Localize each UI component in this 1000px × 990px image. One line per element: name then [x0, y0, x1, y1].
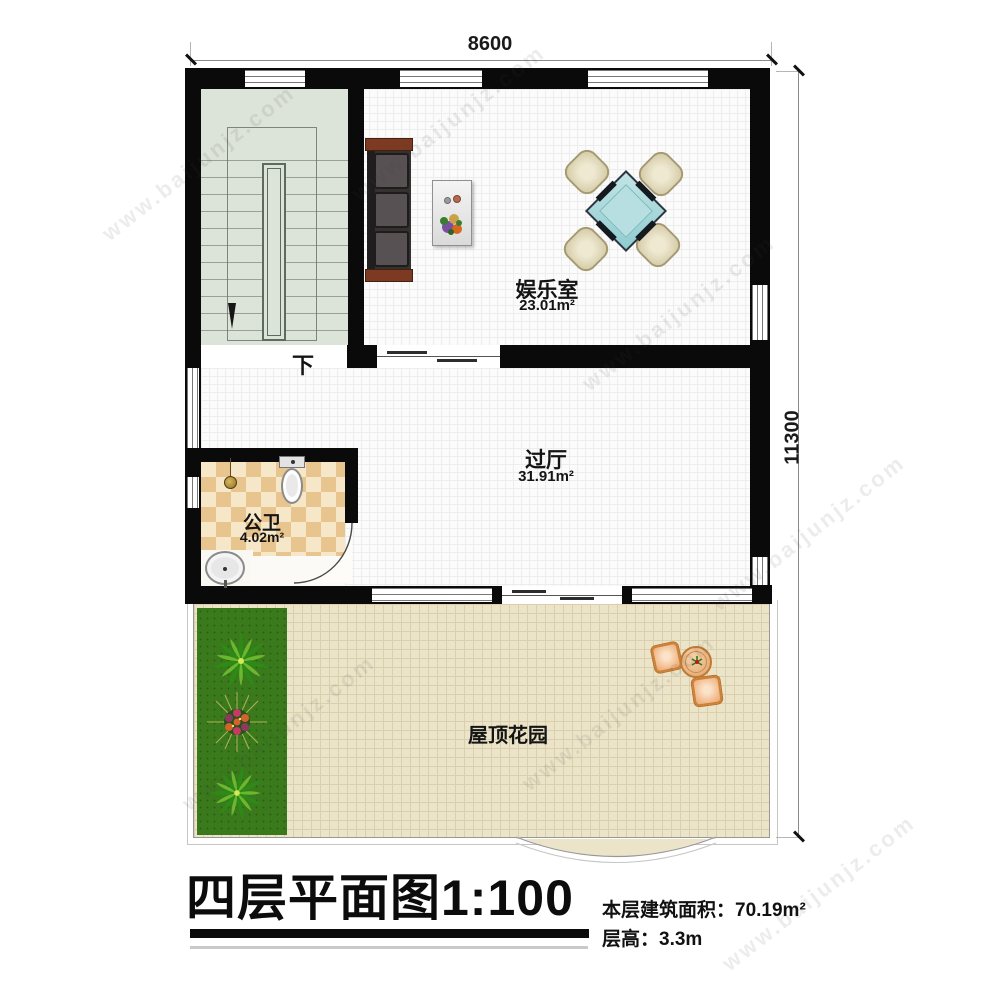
sliding-door-garden-panel	[560, 597, 594, 600]
room-area-bathroom: 4.02m²	[212, 529, 312, 545]
wall-top	[305, 68, 400, 89]
wall-top	[482, 68, 588, 89]
window-right-2	[750, 557, 770, 585]
wall-post	[492, 586, 502, 604]
sofa	[365, 138, 413, 282]
toilet-bowl-inner	[286, 474, 298, 497]
floor-height-info: 层高：3.3m	[602, 924, 702, 951]
dimension-top-label: 8600	[440, 33, 540, 56]
window-hall-bottom-1	[372, 586, 492, 604]
window-right-1	[750, 285, 770, 340]
window-hall-bottom-2	[632, 586, 752, 604]
window-left-bathroom	[185, 477, 201, 508]
wall-left	[185, 68, 201, 368]
sofa-cushion	[374, 153, 409, 189]
toilet-tank-button	[291, 460, 295, 464]
coffee-table-dot	[444, 197, 451, 204]
stairs-down-label: 下	[283, 348, 323, 380]
garden-chair	[650, 641, 682, 673]
wall-stair-divider	[348, 89, 364, 345]
garden-table	[680, 646, 712, 678]
shower-hose	[230, 458, 231, 478]
title-underline-bar	[190, 929, 589, 938]
sliding-door-middle-panel	[387, 351, 427, 354]
sofa-cushion	[374, 192, 409, 228]
wall-hall-bottom	[185, 586, 372, 604]
toilet-bowl	[281, 468, 303, 504]
palm-plant-icon	[206, 762, 268, 824]
wall-bathroom-right	[345, 448, 358, 523]
dimension-right-label: 11300	[782, 388, 805, 488]
coffee-table	[432, 180, 472, 246]
sink-drain	[223, 567, 227, 571]
garden-table-plant-icon	[690, 655, 704, 669]
wall-middle-pier	[347, 345, 377, 368]
table-flowers-icon	[437, 209, 467, 239]
room-label-roof-garden: 屋顶花园	[428, 719, 588, 748]
window-left-hall	[185, 368, 201, 448]
sink-tap	[224, 580, 227, 588]
flower-cluster-icon	[205, 690, 269, 754]
coffee-table-dot	[453, 195, 461, 203]
stairwell	[201, 89, 348, 345]
window-top-1	[245, 68, 305, 89]
sliding-door-middle-panel	[437, 359, 477, 362]
sofa-cushion	[374, 231, 409, 267]
floor-area-info: 本层建筑面积：70.19m²	[602, 895, 806, 922]
wall-corner	[752, 586, 772, 604]
sliding-door-garden	[502, 595, 622, 596]
stair-railing	[262, 163, 286, 341]
wall-right	[750, 68, 770, 285]
wall-right	[750, 340, 770, 557]
toilet-tank	[279, 456, 305, 468]
wall-left	[185, 448, 201, 477]
wall-middle	[500, 345, 750, 368]
room-area-entertainment: 23.01m²	[477, 297, 617, 314]
stair-railing-inner	[267, 168, 281, 336]
window-top-2	[400, 68, 482, 89]
palm-plant-icon	[208, 628, 274, 694]
wall-post	[622, 586, 632, 604]
shower-head-icon	[224, 476, 237, 489]
garden-chair	[691, 675, 723, 707]
sofa-armrest	[365, 269, 413, 282]
window-top-3	[588, 68, 708, 89]
floor-plan-canvas: 娱乐室 23.01m² 过厅 31.91m² 公卫 4.02m² 屋顶花园 下 …	[0, 0, 1000, 990]
down-arrow-icon	[228, 303, 236, 329]
title-underline-thin	[190, 946, 588, 949]
dimension-extension	[776, 71, 800, 72]
page-title: 四层平面图1:100	[186, 858, 574, 930]
dimension-extension	[776, 837, 800, 838]
sink	[205, 551, 245, 585]
room-area-hall: 31.91m²	[480, 468, 612, 485]
sofa-armrest	[365, 138, 413, 151]
dimension-line-top	[190, 60, 772, 61]
sliding-door-garden-panel	[512, 590, 546, 593]
sliding-door-middle	[377, 356, 500, 357]
